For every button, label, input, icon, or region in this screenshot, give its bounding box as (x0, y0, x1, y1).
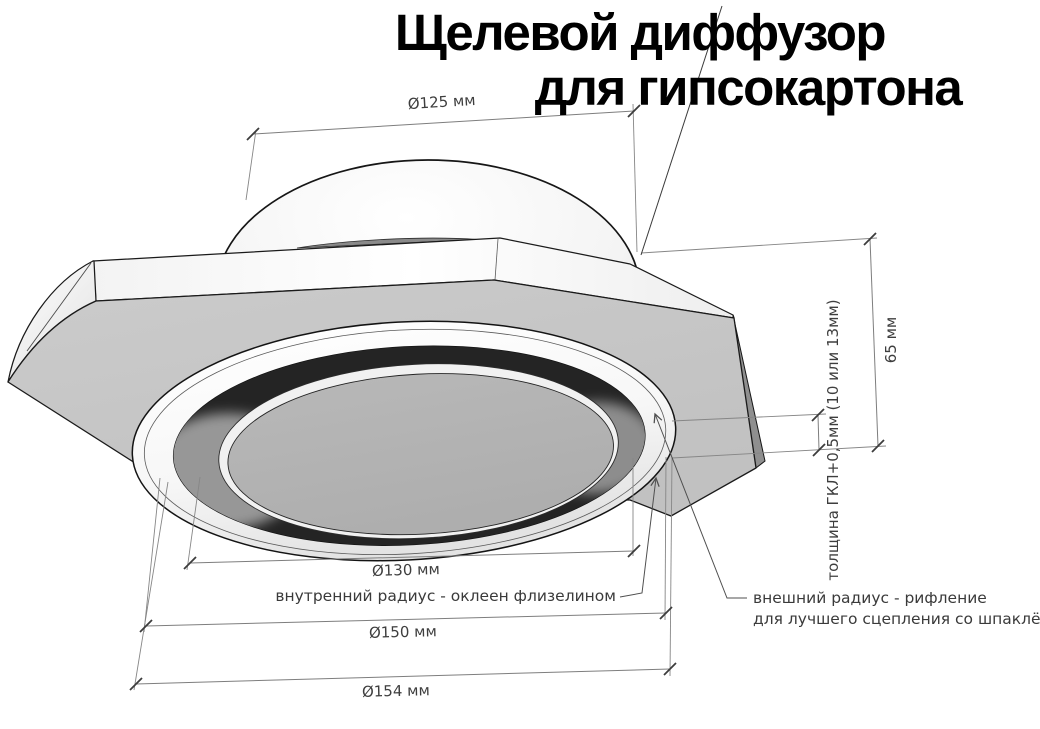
callout-outer-radius-line2: для лучшего сцепления со шпаклёвкой (753, 610, 1040, 628)
diffuser-technical-drawing: Ø125 мм 65 мм толщина ГКЛ+0,5мм (10 или … (0, 0, 1040, 729)
dim-label-thickness: толщина ГКЛ+0,5мм (10 или 13мм) (824, 299, 842, 580)
dim-label-recess-diameter: Ø150 мм (369, 622, 437, 642)
drawing-title-line2: для гипсокартона (535, 59, 964, 116)
callout-inner-radius: внутренний радиус - оклеен флизелином (275, 587, 616, 605)
technical-drawing-page: Ø125 мм 65 мм толщина ГКЛ+0,5мм (10 или … (0, 0, 1040, 729)
dim-label-height: 65 мм (882, 317, 900, 364)
dim-label-inner-diameter: Ø130 мм (372, 560, 440, 580)
callout-outer-radius-line1: внешний радиус - рифление (753, 589, 987, 607)
drawing-title-line1: Щелевой диффузор (395, 4, 886, 61)
dim-label-outer-diameter: Ø154 мм (362, 681, 430, 701)
